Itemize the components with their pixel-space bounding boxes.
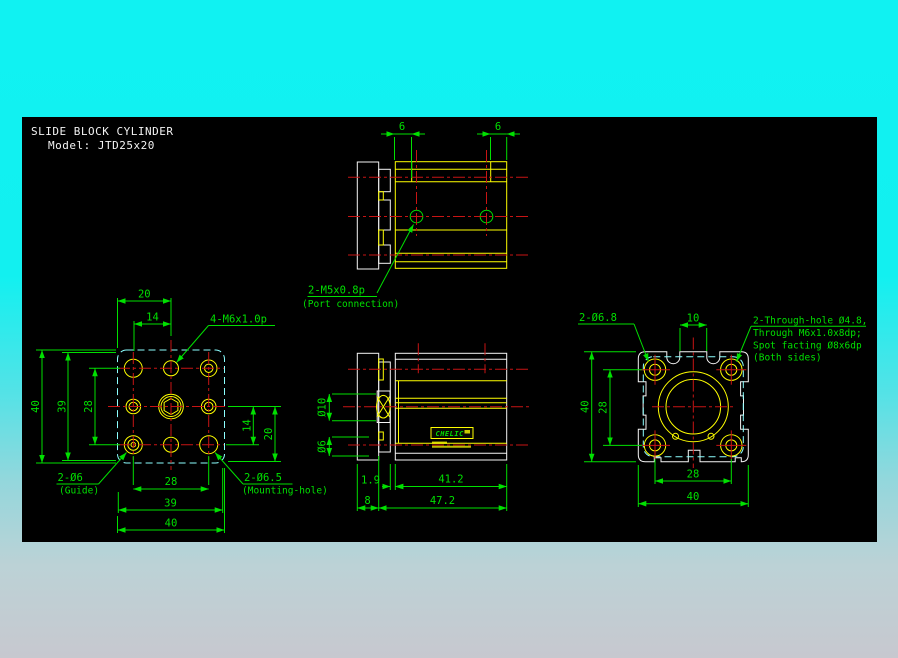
dim-gap: 1.9 — [361, 475, 380, 487]
counterbore-label: 2-Ø6.8 — [579, 312, 617, 324]
drawing-model: Model: JTD25x20 — [48, 139, 155, 152]
dim-side-bottom-40: 40 — [687, 491, 700, 503]
dim-plan-right-20: 20 — [263, 428, 275, 441]
dim-side-left-40: 40 — [580, 400, 592, 413]
port-note: (Port connection) — [302, 299, 399, 310]
cad-drawing-canvas[interactable]: SLIDE BLOCK CYLINDER Model: JTD25x20 — [0, 0, 898, 658]
dim-top-left-6: 6 — [399, 121, 405, 133]
dim-plan-top-20: 20 — [138, 289, 151, 301]
dim-total-length: 47.2 — [430, 495, 455, 507]
dim-top-right-6: 6 — [495, 121, 501, 133]
viewer-page: SLIDE BLOCK CYLINDER Model: JTD25x20 — [0, 0, 898, 658]
guide-note: (Guide) — [59, 486, 99, 497]
dim-plan-top-14: 14 — [146, 312, 159, 324]
drawing-title: SLIDE BLOCK CYLINDER — [31, 125, 173, 138]
dim-plan-bottom-28: 28 — [165, 476, 178, 488]
note-line-1: 2-Through-hole Ø4.8, — [753, 315, 867, 326]
mount-label: 2-Ø6.5 — [244, 472, 282, 484]
mount-note: (Mounting-hole) — [242, 486, 328, 497]
dim-body-length: 41.2 — [438, 474, 463, 486]
dim-side-left-28: 28 — [598, 401, 610, 414]
dim-plan-right-14: 14 — [241, 419, 253, 432]
dim-rod-dia: Ø10 — [317, 398, 329, 417]
dim-side-top-10: 10 — [687, 313, 700, 325]
dim-plan-bottom-40: 40 — [165, 518, 178, 530]
dim-plan-left-28: 28 — [83, 400, 95, 413]
dim-flange-width: 8 — [364, 495, 370, 507]
dim-plan-left-40: 40 — [30, 400, 42, 413]
dim-plan-left-39: 39 — [57, 400, 69, 413]
dim-side-bottom-28: 28 — [687, 469, 700, 481]
guide-label: 2-Ø6 — [58, 472, 83, 484]
port-label: 2-M5x0.8p — [308, 285, 365, 297]
thread-label: 4-M6x1.0p — [210, 314, 267, 326]
title-block: SLIDE BLOCK CYLINDER Model: JTD25x20 — [31, 125, 173, 152]
note-line-3: Spot facting Ø8x6dp — [753, 340, 862, 351]
note-line-2: Through M6x1.0x8dp; — [753, 328, 862, 339]
dim-plan-bottom-39: 39 — [164, 498, 177, 510]
dim-port-dia: Ø6 — [317, 440, 329, 453]
note-line-4: (Both sides) — [753, 353, 822, 364]
brand-text: CHELIC — [436, 430, 465, 438]
